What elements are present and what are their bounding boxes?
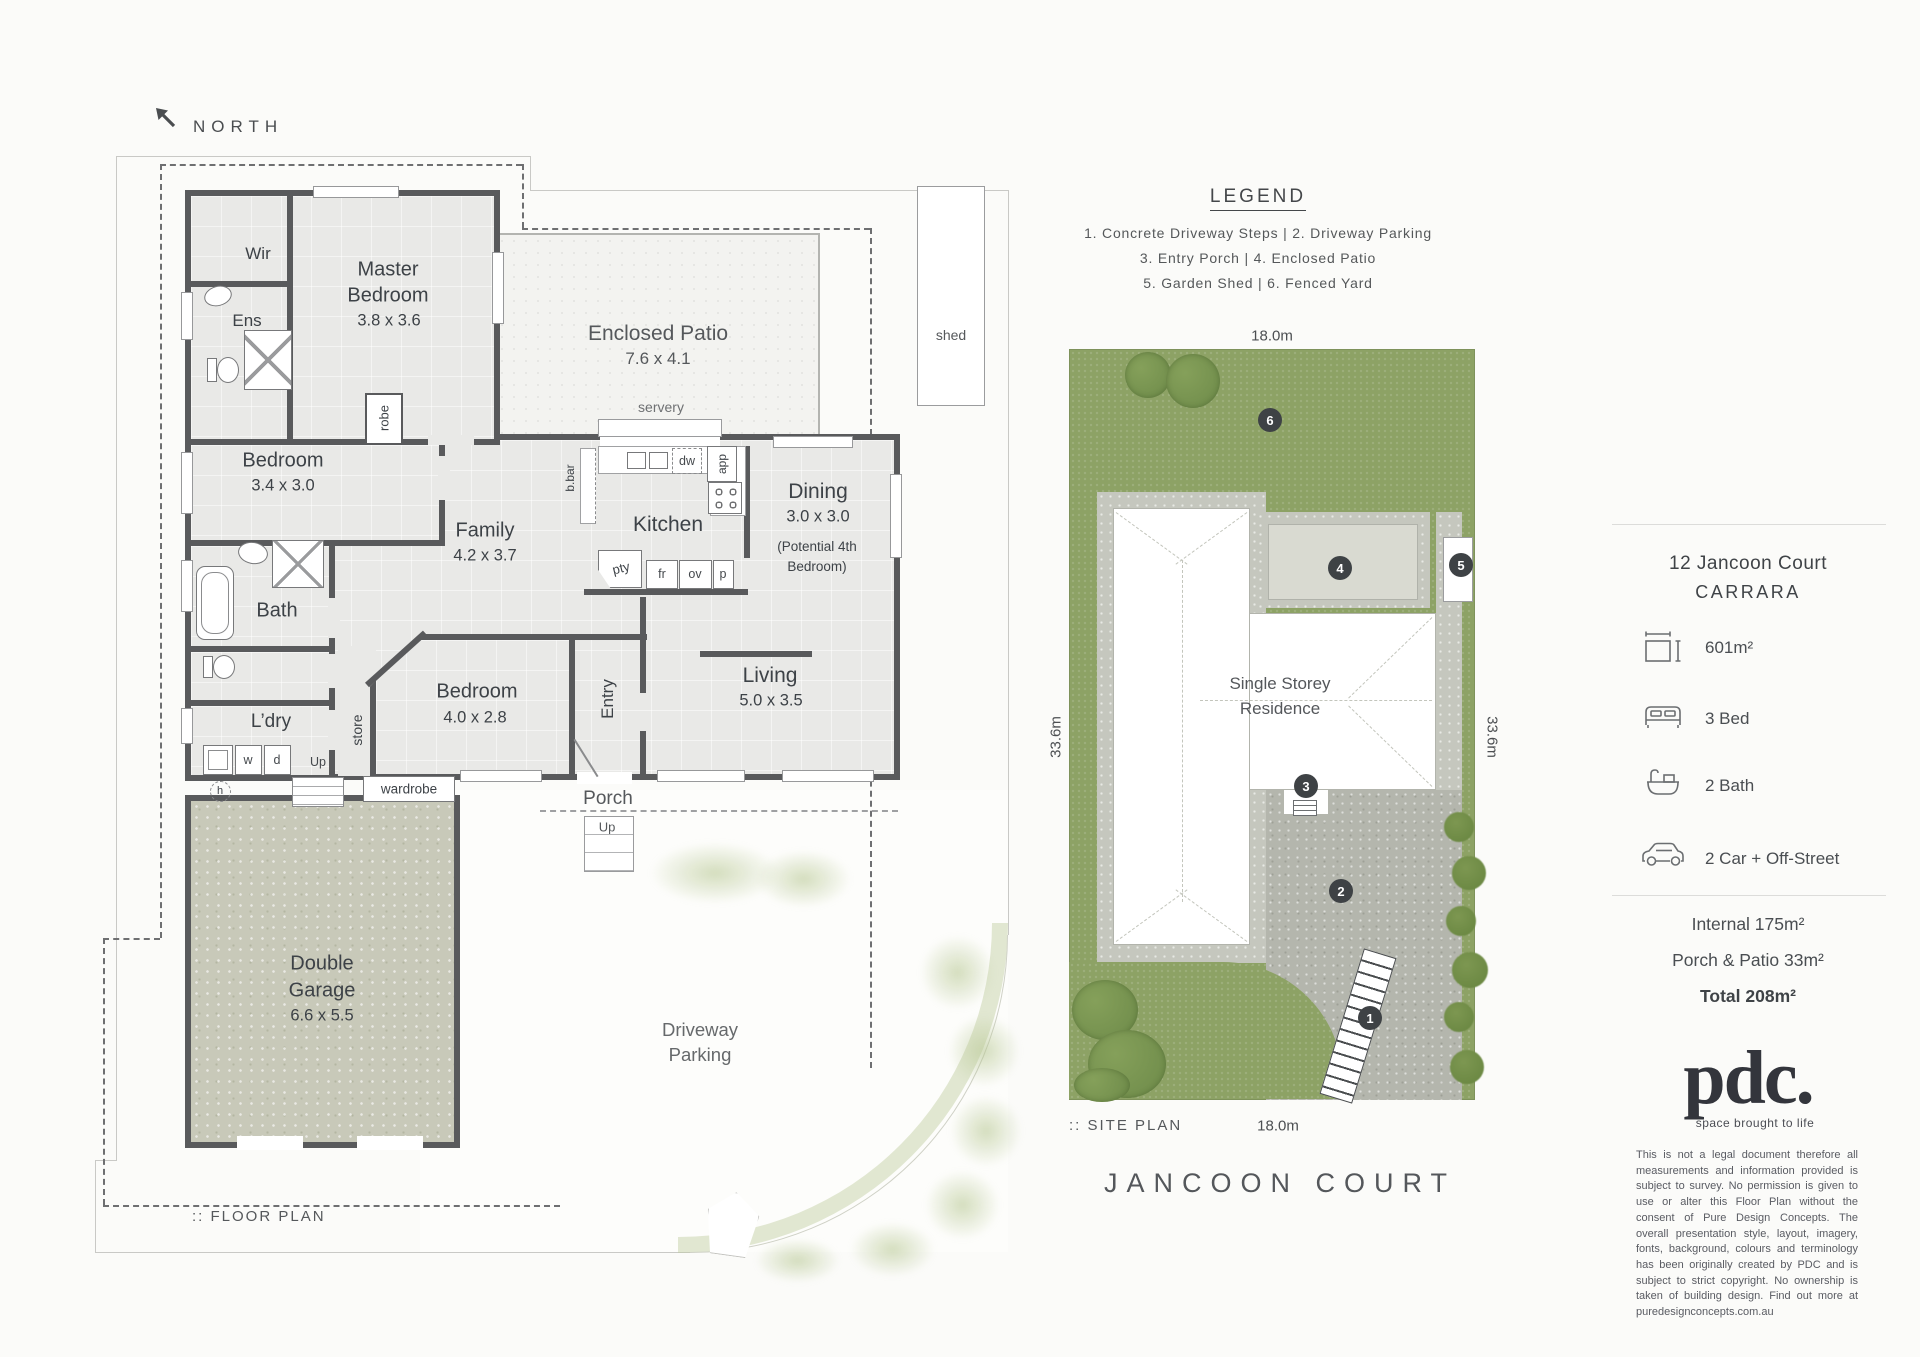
vegetation	[756, 850, 851, 908]
door-gap	[428, 435, 474, 445]
toilet-icon	[207, 358, 217, 382]
porch-patio-area: Porch & Patio 33m²	[1608, 950, 1888, 971]
boundary-dashed	[103, 938, 105, 1205]
wall	[191, 281, 288, 287]
site-dim-bottom: 18.0m	[1257, 1118, 1299, 1135]
panel-divider	[1612, 524, 1886, 525]
boundary-dashed	[160, 164, 522, 166]
door-gap	[438, 456, 450, 500]
room-label-ldry: L’dry	[251, 711, 291, 733]
lot-line	[95, 1252, 691, 1253]
app-label: app	[715, 454, 729, 474]
room-dims-garage: 6.6 x 5.5	[290, 1007, 353, 1026]
door-gap	[328, 710, 340, 750]
cars-value: 2 Car + Off-Street	[1705, 849, 1839, 869]
legend-line: 5. Garden Shed | 6. Fenced Yard	[1008, 275, 1508, 291]
washer-label: w	[243, 753, 252, 767]
site-marker-1: 1	[1358, 1006, 1382, 1030]
sink-icon	[627, 452, 646, 469]
wall	[640, 597, 646, 693]
toilet-icon	[203, 656, 213, 678]
dw-label: dw	[679, 454, 695, 468]
pdc-tagline: space brought to life	[1650, 1116, 1860, 1130]
beds-value: 3 Bed	[1705, 709, 1749, 729]
hall-steps	[292, 777, 344, 807]
vegetation	[925, 1170, 1000, 1240]
room-label-bedroom2: Bedroom	[242, 450, 323, 473]
legend-title: LEGEND	[1210, 186, 1306, 211]
room-dims-bedroom2: 3.4 x 3.0	[251, 477, 314, 496]
bush	[1444, 812, 1474, 842]
patio-dims: 7.6 x 4.1	[625, 349, 690, 369]
room-label-dining: Dining	[788, 480, 848, 504]
boundary-dashed	[522, 164, 524, 228]
site-dim-right: 33.6m	[1484, 716, 1501, 758]
north-arrow-icon	[152, 104, 180, 132]
dryer-label: d	[274, 753, 281, 767]
laundry-tub	[203, 745, 233, 775]
room-label-family: Family	[456, 520, 515, 543]
address-line1: 12 Jancoon Court	[1608, 553, 1888, 575]
room-label-garage2: Garage	[289, 980, 356, 1003]
window	[492, 252, 504, 324]
lot-line	[1008, 190, 1009, 935]
room-label-ens: Ens	[232, 311, 261, 331]
driveway-label: Driveway Parking	[630, 1018, 770, 1068]
hotwater-label: h	[217, 785, 223, 797]
siteplan-section-label: :: SITE PLAN	[1069, 1117, 1182, 1134]
bush	[1450, 1050, 1484, 1084]
shower-icon	[272, 540, 324, 588]
bush	[1444, 1002, 1474, 1032]
servery-label: servery	[638, 399, 684, 415]
boundary-dashed	[103, 938, 160, 940]
room-dims-bedroom3: 4.0 x 2.8	[443, 709, 506, 728]
bush	[1452, 952, 1488, 988]
wall	[700, 651, 812, 657]
door-gap	[328, 654, 340, 688]
baths-value: 2 Bath	[1705, 776, 1754, 796]
floorplan-page: NORTH	[0, 0, 1920, 1357]
window	[773, 436, 853, 448]
bed-icon	[1643, 698, 1683, 732]
window	[181, 708, 193, 744]
bath-icon	[1643, 766, 1683, 800]
vegetation	[755, 1238, 840, 1283]
bbar-label: b.bar	[563, 464, 577, 491]
site-dim-left: 33.6m	[1048, 716, 1065, 758]
site-marker-2: 2	[1329, 879, 1353, 903]
shed-label: shed	[936, 327, 966, 343]
p-label: p	[720, 567, 727, 581]
room-label-wir: Wir	[245, 244, 270, 264]
shed-outline	[917, 186, 985, 406]
lot-line	[116, 156, 530, 157]
wall	[287, 196, 293, 439]
shower-icon	[244, 330, 292, 390]
lot-line	[95, 1160, 117, 1161]
site-marker-3: 3	[1294, 774, 1318, 798]
tree	[1074, 1068, 1130, 1102]
window	[460, 770, 542, 782]
lot-line	[530, 156, 531, 190]
window	[181, 560, 193, 612]
site-marker-4: 4	[1328, 556, 1352, 580]
window	[181, 452, 193, 514]
residence-label1: Single Storey	[1229, 674, 1330, 694]
store-label: store	[349, 714, 365, 745]
toilet-icon	[213, 655, 235, 679]
address-line2: CARRARA	[1608, 582, 1888, 603]
tree	[1166, 354, 1220, 408]
boundary-dashed	[103, 1205, 560, 1207]
site-marker-6: 6	[1258, 408, 1282, 432]
vegetation	[920, 935, 995, 1010]
wall	[640, 731, 646, 780]
vegetation	[950, 1095, 1022, 1167]
up-porch-label: Up	[599, 820, 616, 835]
vegetation	[850, 1222, 935, 1277]
room-label-garage: Double	[290, 953, 353, 976]
window	[890, 474, 902, 558]
room-dims-living: 5.0 x 3.5	[739, 692, 802, 711]
tree	[1125, 352, 1171, 398]
street-name: JANCOON COURT	[1040, 1168, 1520, 1199]
garage-door-gap	[357, 1136, 423, 1150]
sink-icon	[649, 452, 668, 469]
legend-line: 1. Concrete Driveway Steps | 2. Driveway…	[1008, 225, 1508, 241]
wardrobe-label: wardrobe	[381, 782, 437, 797]
servery-bench	[598, 419, 722, 437]
land-area-icon	[1643, 630, 1685, 666]
toilet-icon	[217, 357, 239, 383]
bathtub-icon	[196, 566, 234, 640]
rear-path-strip	[1097, 943, 1266, 963]
car-icon	[1640, 840, 1686, 870]
room-label-living: Living	[743, 664, 798, 688]
roof-ridge	[1182, 560, 1184, 902]
legend-line: 3. Entry Porch | 4. Enclosed Patio	[1008, 250, 1508, 266]
fr-label: fr	[658, 567, 666, 581]
door-gap	[328, 598, 340, 638]
residence-label2: Residence	[1240, 699, 1320, 719]
breakfast-bar	[580, 448, 596, 524]
room-label-master: Master	[357, 259, 418, 282]
cooktop-icon	[708, 482, 742, 514]
site-dim-top: 18.0m	[1251, 328, 1293, 345]
wall	[584, 589, 748, 595]
room-label-kitchen: Kitchen	[633, 513, 703, 537]
lot-line	[116, 156, 117, 1160]
robe-label: robe	[377, 405, 392, 431]
porch-dashed	[540, 810, 898, 812]
window	[782, 770, 874, 782]
site-marker-5: 5	[1449, 553, 1473, 577]
window	[181, 292, 193, 340]
room-label-bedroom3: Bedroom	[436, 681, 517, 704]
room-label-bath: Bath	[256, 600, 297, 623]
ov-label: ov	[688, 567, 701, 581]
boundary-dashed	[522, 228, 870, 230]
window	[657, 770, 745, 782]
dining-note: (Potential 4th Bedroom)	[752, 537, 882, 576]
boundary-dashed	[160, 164, 162, 938]
bush	[1452, 856, 1486, 890]
room-dims-dining: 3.0 x 3.0	[786, 508, 849, 527]
lot-line	[95, 1160, 96, 1252]
patio-label: Enclosed Patio	[588, 322, 728, 346]
bush	[1446, 906, 1476, 936]
north-label: NORTH	[193, 117, 283, 137]
panel-divider	[1612, 895, 1886, 896]
pdc-logo: pdc.	[1608, 1040, 1888, 1116]
up-hall-label: Up	[310, 755, 326, 769]
legend: LEGEND 1. Concrete Driveway Steps | 2. D…	[1008, 186, 1508, 291]
entry-door-gap	[577, 772, 632, 784]
wall	[569, 634, 647, 640]
window	[313, 186, 399, 198]
total-area: Total 208m²	[1608, 986, 1888, 1007]
land-area-value: 601m²	[1705, 638, 1753, 658]
room-dims-master: 3.8 x 3.6	[357, 312, 420, 331]
room-dims-family: 4.2 x 3.7	[453, 547, 516, 566]
vegetation	[948, 1015, 1020, 1087]
porch-steps-site	[1293, 800, 1317, 816]
internal-area: Internal 175m²	[1608, 914, 1888, 935]
room-label-master2: Bedroom	[347, 285, 428, 308]
entry-label: Entry	[598, 679, 618, 719]
disclaimer-text: This is not a legal document therefore a…	[1636, 1148, 1858, 1321]
porch-label: Porch	[583, 788, 633, 810]
floorplan-section-label: :: FLOOR PLAN	[192, 1208, 326, 1225]
garage-door-gap	[237, 1136, 303, 1150]
